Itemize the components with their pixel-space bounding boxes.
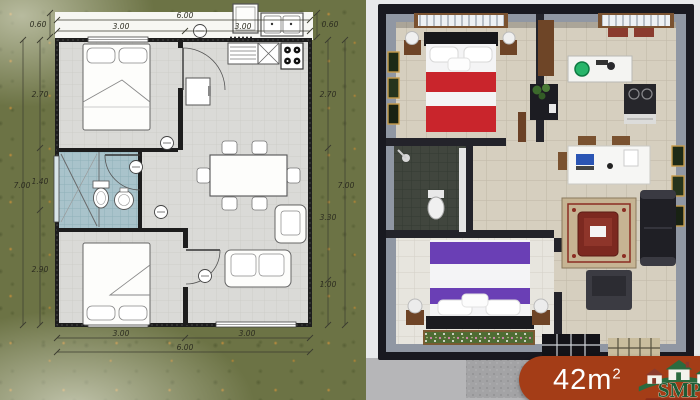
render-3d-drawing <box>366 0 700 400</box>
area-badge: 42m2 SMP <box>519 356 700 400</box>
dim-bottom-left: 3.00 <box>113 329 130 338</box>
logo-text: SMP <box>658 378 700 400</box>
dim-top-left: 3.00 <box>113 22 130 31</box>
floor-plan-drawing: 6.00 3.00 3.00 0.60 0.60 2.70 7.00 1.40 … <box>0 0 366 400</box>
logo-house-middle <box>665 360 692 380</box>
kitchen-sink-counter <box>261 13 303 36</box>
bed-1-plan <box>83 44 150 130</box>
area-label: 42m2 <box>553 364 622 397</box>
dim-corner-left: 0.60 <box>30 20 47 29</box>
dim-bottom-right: 3.00 <box>239 329 256 338</box>
dim-left-1: 2.70 <box>32 90 49 99</box>
bedroom1-door-3d <box>518 112 526 142</box>
bed-2-plan <box>83 243 150 325</box>
dim-left-total: 7.00 <box>14 181 31 190</box>
dim-top-total: 6.00 <box>177 11 194 20</box>
hall-door-3d <box>538 20 554 76</box>
dim-right-2: 3.30 <box>320 213 337 222</box>
house-plan-graphic: 6.00 3.00 3.00 0.60 0.60 2.70 7.00 1.40 … <box>0 0 700 400</box>
dim-bottom-total: 6.00 <box>177 343 194 352</box>
render-3d-panel <box>366 0 700 400</box>
dim-left-3: 2.90 <box>32 265 49 274</box>
dim-right-total: 7.00 <box>338 181 355 190</box>
floor-plan-2d-panel: 6.00 3.00 3.00 0.60 0.60 2.70 7.00 1.40 … <box>0 0 366 400</box>
dim-left-2: 1.40 <box>32 177 49 186</box>
dim-right-3: 1.00 <box>320 280 337 289</box>
smp-logo: SMP <box>634 357 700 400</box>
dim-top-right: 3.00 <box>235 22 252 31</box>
dim-corner-right: 0.60 <box>322 20 339 29</box>
dim-right-1: 2.70 <box>320 90 337 99</box>
